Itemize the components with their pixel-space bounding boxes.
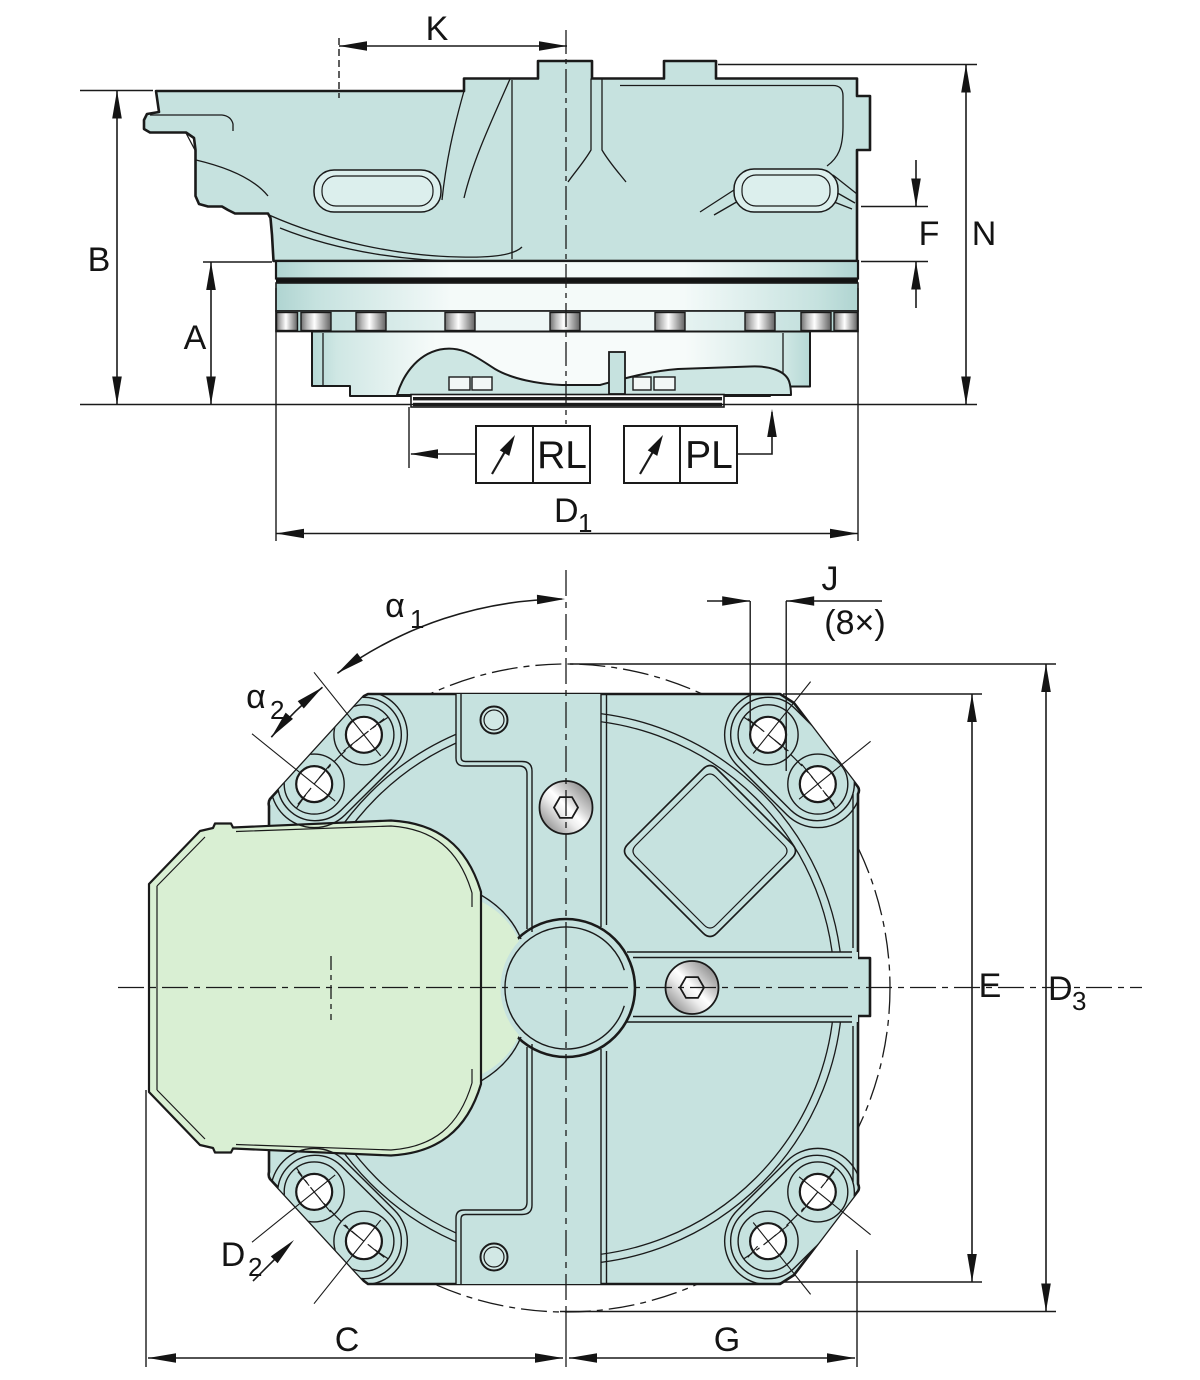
svg-text:D: D — [221, 1236, 246, 1274]
svg-text:1: 1 — [578, 508, 592, 538]
svg-text:E: E — [979, 967, 1002, 1005]
svg-text:F: F — [919, 215, 940, 253]
svg-text:K: K — [426, 10, 449, 48]
svg-text:N: N — [972, 215, 997, 253]
svg-text:2: 2 — [270, 695, 284, 725]
svg-text:3: 3 — [1072, 986, 1086, 1016]
svg-text:D: D — [554, 492, 579, 530]
svg-text:A: A — [184, 319, 207, 357]
svg-text:C: C — [335, 1321, 360, 1359]
svg-text:1: 1 — [410, 604, 424, 634]
svg-text:2: 2 — [248, 1252, 262, 1282]
svg-text:(8×): (8×) — [824, 604, 885, 642]
svg-text:PL: PL — [685, 434, 733, 477]
svg-text:G: G — [714, 1321, 740, 1359]
svg-text:J: J — [822, 560, 839, 598]
svg-text:α: α — [246, 678, 266, 716]
svg-text:B: B — [88, 241, 111, 279]
svg-text:α: α — [385, 587, 405, 625]
svg-text:RL: RL — [537, 434, 587, 477]
svg-text:D: D — [1048, 970, 1073, 1008]
